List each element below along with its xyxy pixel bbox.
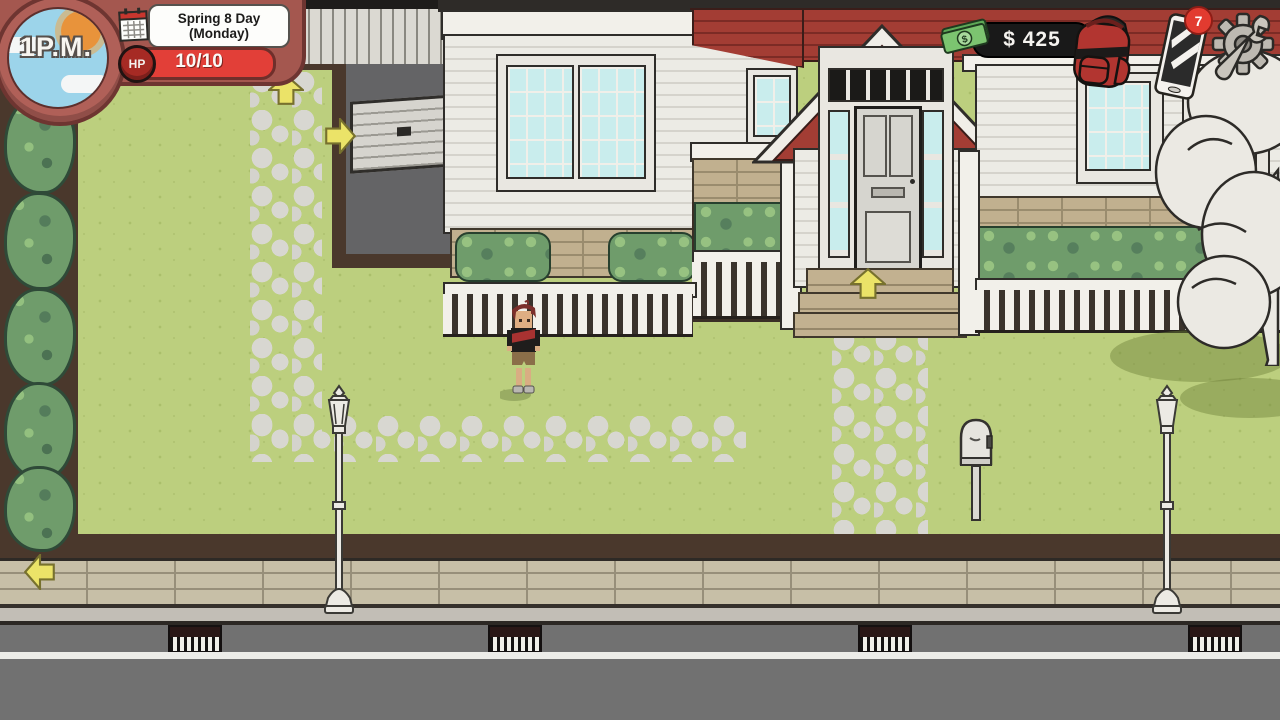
sidewalk [0, 558, 1280, 606]
money-amount: $ 425 [1003, 28, 1061, 52]
storm-drain [168, 625, 222, 653]
lamp-post [320, 384, 358, 616]
phone-notification-badge: 7 [1184, 6, 1213, 35]
date-display: Spring 8 Day (Monday) [148, 4, 290, 48]
cash-icon: $ [938, 14, 994, 58]
hp-value: 10/10 [125, 51, 273, 73]
door-up-arrow[interactable] [850, 268, 886, 300]
door-panel [863, 115, 887, 177]
door-surround [818, 46, 954, 288]
calendar-icon [118, 6, 150, 44]
bay-window [496, 54, 656, 192]
window-glass [506, 65, 574, 179]
transom-window [828, 68, 944, 102]
mailbox[interactable] [952, 414, 1000, 524]
street-lane-line [0, 652, 1280, 659]
stone-path-front-door [832, 330, 928, 534]
foundation-bush [455, 232, 551, 282]
cellar-door[interactable] [350, 94, 456, 173]
gear-icon[interactable] [1208, 8, 1278, 88]
curb [0, 608, 1280, 621]
storm-drain [488, 625, 542, 653]
cloud-icon [61, 75, 109, 93]
lamp-post [1148, 384, 1186, 616]
mail-slot [871, 187, 905, 198]
date-weekday: (Monday) [150, 26, 288, 41]
foundation-bush [608, 232, 696, 282]
time-label: 1P.M. [0, 32, 114, 63]
storm-drain [1188, 625, 1242, 653]
door-knob [910, 179, 915, 184]
stone-path-vertical-left [250, 72, 322, 450]
date-season-day: Spring 8 Day [150, 11, 288, 26]
dirt-border-bottom [0, 534, 1280, 558]
cellar-right-arrow[interactable] [324, 118, 356, 154]
sidelight [922, 110, 944, 258]
bush [4, 466, 76, 552]
hp-bar: HP 10/10 [122, 47, 276, 80]
bush [4, 288, 76, 386]
window-glass [578, 65, 646, 179]
sidelight [828, 110, 850, 258]
sidewalk-left-arrow[interactable] [24, 554, 56, 590]
front-steps [793, 312, 967, 338]
garage-door [298, 0, 450, 64]
door-panel [865, 211, 911, 263]
backpack-icon[interactable] [1064, 8, 1142, 96]
player-character [500, 298, 546, 404]
bush [4, 192, 76, 290]
picket-fence [443, 294, 693, 337]
front-door[interactable] [854, 106, 922, 276]
game-viewport: 1P.M. Spring 8 Day (Monday) HP 10/10 $ $… [0, 0, 1280, 720]
storm-drain [858, 625, 912, 653]
door-panel [889, 115, 913, 177]
